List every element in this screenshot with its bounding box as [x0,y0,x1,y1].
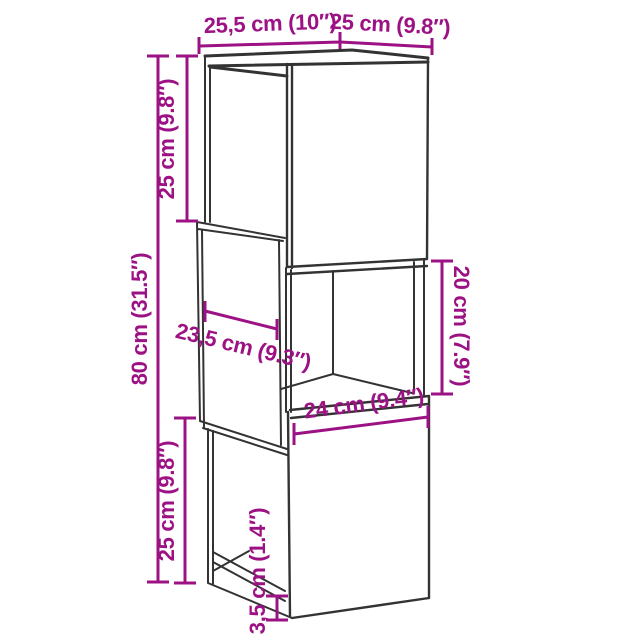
dim-label-inner-height: 20 cm (7.9″) [449,266,474,387]
dim-label-top-width: 25,5 cm (10″) [203,9,336,39]
dim-label-base-height: 3,5 cm (1.4″) [245,508,270,634]
dim-label-total-height: 80 cm (31.5″) [127,253,152,386]
dim-label-upper-section-height: 25 cm (9.8″) [154,79,179,200]
cabinet-lower-door-panel [288,396,429,618]
cabinet-upper-left-side [205,57,210,222]
dim-label-lower-section-height: 25 cm (9.8″) [154,441,179,562]
dim-label-inner-depth: 23,5 cm (9.3″) [173,318,313,375]
cabinet-upper-door-panel [287,59,428,274]
dim-line-upper-section-height [176,56,198,221]
cabinet-dimension-drawing: 25,5 cm (10″) 25 cm (9.8″) 25 cm (9.8″) … [0,0,640,640]
dim-label-top-depth: 25 cm (9.8″) [329,9,451,40]
dimension-diagram: 25,5 cm (10″) 25 cm (9.8″) 25 cm (9.8″) … [0,0,640,640]
dim-label-inner-width: 24 cm (9.4″) [302,383,425,424]
cabinet-top-face [205,50,428,76]
dimension-labels: 25,5 cm (10″) 25 cm (9.8″) 25 cm (9.8″) … [127,9,474,635]
